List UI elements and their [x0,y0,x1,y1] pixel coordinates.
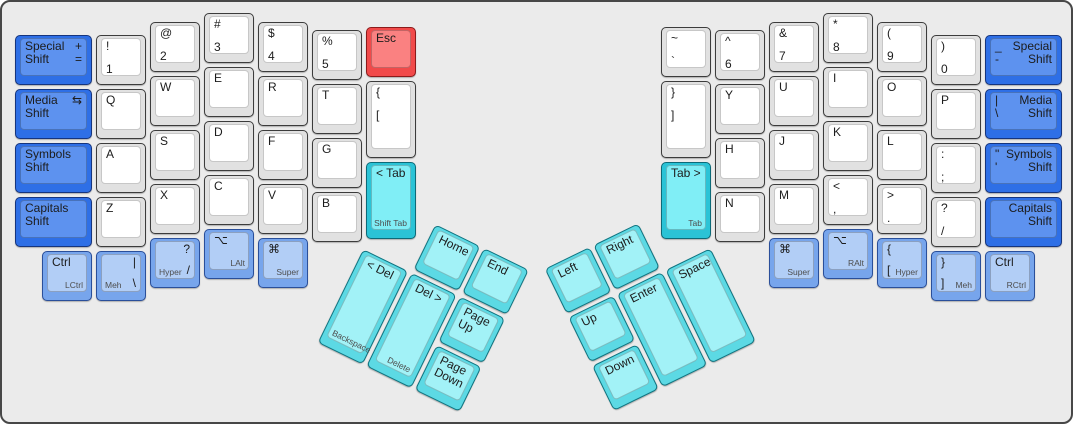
key-q[interactable]: Q [96,89,146,139]
key-brace-left[interactable]: {[ [366,81,416,158]
key-num0[interactable]: )0 [931,35,981,85]
key-g[interactable]: G [312,138,362,188]
key-lalt[interactable]: ⌥LAlt [204,229,254,279]
key-w[interactable]: W [150,76,200,126]
keycap-end: End [471,253,524,305]
key-legend-tl: Z [106,202,113,215]
key-legend-tl: : [941,148,944,161]
keycap-w: W [155,79,195,117]
keycap-meh-right: }]Meh [936,254,976,292]
keycap-brace-left: {[ [371,84,411,149]
key-c[interactable]: C [204,175,254,225]
key-legend-tl: ⌥ [833,234,847,247]
keycap-lctrl: CtrlLCtrl [47,254,87,292]
key-media-shift-left[interactable]: MediaShift⇆ [15,89,92,139]
key-legend-sr: LAlt [230,259,245,268]
key-num9[interactable]: (9 [877,22,927,72]
keycap-down: Down [598,349,651,401]
key-legend-tl: { [376,86,380,99]
keycap-q: Q [101,92,141,130]
key-s[interactable]: S [150,130,200,180]
key-legend-tl: Home [437,233,471,259]
key-num4[interactable]: $4 [258,22,308,72]
key-legend-tl: ( [887,27,891,40]
keycap-media-shift-right: |\MediaShift [990,92,1057,130]
key-legend-sr: Delete [386,356,412,375]
keycap-n: N [720,195,760,233]
key-num1[interactable]: !1 [96,35,146,85]
key-legend-tl: } [671,86,675,99]
key-legend-tl: J [779,135,785,148]
keycap-backtick: ~` [666,30,706,68]
key-legend-tl: ~ [671,32,678,45]
key-legend-tl: W [160,81,171,94]
key-lctrl[interactable]: CtrlLCtrl [42,251,92,301]
key-legend-tr: Shift [1028,53,1052,66]
key-legend-tl: M [779,189,789,202]
keycap-symbols-shift-left: SymbolsShift [20,146,87,184]
keycap-lalt: ⌥LAlt [209,232,249,270]
keycap-num1: !1 [101,38,141,76]
key-legend-sr: RAlt [848,259,864,268]
key-legend-sr: Shift Tab [374,219,407,228]
keycap-media-shift-left: MediaShift⇆ [20,92,87,130]
keycap-rctrl: CtrlRCtrl [990,254,1030,292]
keycap-up: Up [574,300,627,352]
keycap-tab-left: < TabShift Tab [371,165,411,230]
keycap-num7: &7 [774,25,814,63]
keycap-num0: )0 [936,38,976,76]
key-ralt[interactable]: ⌥RAlt [823,229,873,279]
key-legend-ml: 3 [214,41,221,54]
key-e[interactable]: E [204,67,254,117]
key-period[interactable]: >. [877,184,927,234]
key-legend-sl: Backspace [331,329,372,355]
keycap-num4: $4 [263,25,303,63]
key-legend-tr: Shift [1028,161,1052,174]
key-legend-tl: D [214,126,223,139]
key-legend-tl: Enter [628,281,659,305]
key-legend-tl: F [268,135,275,148]
key-legend-tl: U [779,81,788,94]
key-x[interactable]: X [150,184,200,234]
key-legend-tl: ⌘ [268,243,280,256]
key-legend-tr: ? [183,243,190,256]
keycap-capitals-shift-left: CapitalsShift [20,200,87,238]
keycap-s: S [155,133,195,171]
key-d[interactable]: D [204,121,254,171]
keycap-i: I [828,70,868,108]
key-legend-tl: { [887,243,891,256]
key-legend-tl: Space [677,255,713,282]
key-num5[interactable]: %5 [312,30,362,80]
keycap-slash: ?/ [936,200,976,238]
key-z[interactable]: Z [96,197,146,247]
key-legend-tl: Shift [25,161,49,174]
keycap-num8: *8 [828,16,868,54]
key-legend-tl: Q [106,94,115,107]
key-legend-tl: < [833,180,840,193]
key-super-left[interactable]: ⌘Super [258,238,308,288]
key-legend-tr: Shift [1028,107,1052,120]
key-legend-ml: 6 [725,58,732,71]
key-legend-ml: ; [941,171,944,184]
key-legend-tl: B [322,197,330,210]
keycap-num9: (9 [882,25,922,63]
key-legend-tl: Shift [25,53,49,66]
key-num3[interactable]: #3 [204,13,254,63]
key-num7[interactable]: &7 [769,22,819,72]
key-legend-ml: 1 [106,63,113,76]
keycap-t: T [317,87,357,125]
key-legend-bl: ] [941,277,944,290]
key-h[interactable]: H [715,138,765,188]
key-legend-tr: | [133,256,136,269]
keycap-num2: @2 [155,25,195,63]
key-legend-tl: < Tab [376,167,405,180]
key-legend-tl: O [887,81,896,94]
key-symbols-shift-left[interactable]: SymbolsShift [15,143,92,193]
key-legend-ml: / [941,225,944,238]
key-legend-tl: ⌥ [214,234,228,247]
key-capitals-shift-right[interactable]: CapitalsShift [985,197,1062,247]
keycap-super-right: ⌘Super [774,241,814,279]
key-legend-tl: ? [941,202,948,215]
key-special-shift-left[interactable]: SpecialShift+= [15,35,92,85]
key-legend-ml: [ [376,109,379,122]
keycap-esc: Esc [371,30,411,68]
key-legend-tl: \ [995,107,998,120]
keycap-d: D [209,124,249,162]
key-l[interactable]: L [877,130,927,180]
key-i[interactable]: I [823,67,873,117]
key-legend-sl: Meh [105,281,122,290]
key-rctrl[interactable]: CtrlRCtrl [985,251,1035,301]
key-legend-ml: 5 [322,58,329,71]
keycap-c: C [209,178,249,216]
key-legend-ml: 2 [160,50,167,63]
key-p[interactable]: P [931,89,981,139]
key-v[interactable]: V [258,184,308,234]
keycap-right: Right [599,228,652,280]
key-legend-tl: I [833,72,836,85]
key-tab-right[interactable]: Tab >Tab [661,162,711,239]
key-legend-tl: R [268,81,277,94]
key-meh-left[interactable]: |\Meh [96,251,146,301]
key-legend-ml: ` [671,55,675,68]
keycap-ralt: ⌥RAlt [828,232,868,270]
keycap-num3: #3 [209,16,249,54]
keycap-k: K [828,124,868,162]
key-legend-tl: Ctrl [995,256,1014,269]
key-backtick[interactable]: ~` [661,27,711,77]
keycap-hyper-right: {[Hyper [882,241,922,279]
keycap-e: E [209,70,249,108]
key-r[interactable]: R [258,76,308,126]
key-legend-ml: 8 [833,41,840,54]
key-legend-tl: ⌘ [779,243,791,256]
key-media-shift-right[interactable]: |\MediaShift [985,89,1062,139]
key-symbols-shift-right[interactable]: "'SymbolsShift [985,143,1062,193]
key-legend-sr: LCtrl [65,281,83,290]
keycap-page-up: PageUp [447,301,500,353]
key-semicolon[interactable]: :; [931,143,981,193]
key-special-shift-right[interactable]: _-SpecialShift [985,35,1062,85]
key-num2[interactable]: @2 [150,22,200,72]
key-legend-sr: RCtrl [1007,281,1026,290]
key-legend-tl: * [833,18,838,31]
key-legend-tl: N [725,197,734,210]
keycap-comma: <, [828,178,868,216]
key-legend-tl: Right [604,233,635,257]
keycap-symbols-shift-right: "'SymbolsShift [990,146,1057,184]
key-legend-tl: G [322,143,331,156]
key-legend-tl: % [322,35,333,48]
keycap-home: Home [422,229,475,281]
keycap-a: A [101,146,141,184]
key-legend-tl: K [833,126,841,139]
keycap-special-shift-right: _-SpecialShift [990,38,1057,76]
key-legend-tl: - [995,53,999,66]
key-legend-tl: End [485,257,510,278]
key-legend-ml: 9 [887,50,894,63]
key-legend-tl: ' [995,161,997,174]
key-legend-br: / [187,264,190,277]
key-legend-tl: @ [160,27,172,40]
keycap-v: V [263,187,303,225]
keycap-brace-right: }] [666,84,706,149]
keycap-period: >. [882,187,922,225]
keycap-f: F [263,133,303,171]
key-legend-sl: Hyper [159,268,182,277]
key-legend-tl: < Del [364,258,395,282]
keycap-b: B [317,195,357,233]
key-hyper-right[interactable]: {[Hyper [877,238,927,288]
key-legend-tl: Del > [413,282,444,306]
key-super-right[interactable]: ⌘Super [769,238,819,288]
keycap-h: H [720,141,760,179]
key-o[interactable]: O [877,76,927,126]
key-legend-tl: Shift [25,107,49,120]
key-legend-ml: 0 [941,63,948,76]
key-legend-tl: Shift [25,215,49,228]
key-brace-right[interactable]: }] [661,81,711,158]
key-b[interactable]: B [312,192,362,242]
key-legend-tl: } [941,256,945,269]
key-legend-sr: Super [276,268,299,277]
key-y[interactable]: Y [715,84,765,134]
key-legend-tl: T [322,89,329,102]
keycap-p: P [936,92,976,130]
keycap-y: Y [720,87,760,125]
key-num6[interactable]: ^6 [715,30,765,80]
keyboard-panel: SpecialShift+=MediaShift⇆SymbolsShiftCap… [0,0,1073,424]
key-legend-tl: A [106,148,114,161]
keycap-left: Left [550,252,603,304]
key-legend-tr: ⇆ [72,94,82,107]
key-legend-tl: E [214,72,222,85]
keycap-num5: %5 [317,33,357,71]
keycap-u: U [774,79,814,117]
key-m[interactable]: M [769,184,819,234]
key-legend-tl: Y [725,89,733,102]
key-tab-left[interactable]: < TabShift Tab [366,162,416,239]
keycap-capitals-shift-right: CapitalsShift [990,200,1057,238]
keycap-meh-left: |\Meh [101,254,141,292]
key-legend-tl: Left [556,260,580,280]
key-slash[interactable]: ?/ [931,197,981,247]
keycap-l: L [882,133,922,171]
key-legend-sr: Meh [955,281,972,290]
keycap-z: Z [101,200,141,238]
key-legend-sr: Tab [688,219,702,228]
key-legend-tl: Tab > [671,167,701,180]
key-legend-tl: & [779,27,787,40]
key-legend-tl: # [214,18,221,31]
keycap-hyper-left: ?/Hyper [155,241,195,279]
keycap-r: R [263,79,303,117]
key-comma[interactable]: <, [823,175,873,225]
key-legend-tl: Ctrl [52,256,71,269]
keycap-semicolon: :; [936,146,976,184]
keycap-page-down: PageDown [423,350,476,402]
key-legend-br: \ [133,277,136,290]
key-legend-tl: P [941,94,949,107]
key-legend-sr: Super [787,268,810,277]
key-f[interactable]: F [258,130,308,180]
key-legend-ml: ] [671,109,674,122]
key-k[interactable]: K [823,121,873,171]
key-hyper-left[interactable]: ?/Hyper [150,238,200,288]
key-t[interactable]: T [312,84,362,134]
key-legend-tl: > [887,189,894,202]
key-legend-sr: Hyper [895,268,918,277]
key-legend-tl: X [160,189,168,202]
key-legend-ml: , [833,203,836,216]
key-num8[interactable]: *8 [823,13,873,63]
key-legend-tr: = [75,53,82,66]
key-legend-tl: Esc [376,32,396,45]
key-legend-tl: L [887,135,894,148]
keycap-m: M [774,187,814,225]
key-meh-right[interactable]: }]Meh [931,251,981,301]
keycap-j: J [774,133,814,171]
key-legend-ml: 4 [268,50,275,63]
keycap-o: O [882,79,922,117]
keycap-special-shift-left: SpecialShift+= [20,38,87,76]
keycap-num6: ^6 [720,33,760,71]
key-legend-tl: S [160,135,168,148]
key-legend-tl: V [268,189,276,202]
key-legend-tl: $ [268,27,275,40]
key-legend-bl: [ [887,264,890,277]
key-legend-tl: C [214,180,223,193]
key-legend-tl: ) [941,40,945,53]
key-u[interactable]: U [769,76,819,126]
key-esc[interactable]: Esc [366,27,416,77]
key-legend-ml: . [887,212,890,225]
key-capitals-shift-left[interactable]: CapitalsShift [15,197,92,247]
key-j[interactable]: J [769,130,819,180]
keycap-g: G [317,141,357,179]
keycap-tab-right: Tab >Tab [666,165,706,230]
keycap-x: X [155,187,195,225]
key-n[interactable]: N [715,192,765,242]
key-a[interactable]: A [96,143,146,193]
key-legend-ml: 7 [779,50,786,63]
keycap-super-left: ⌘Super [263,241,303,279]
key-legend-tr: Shift [1028,215,1052,228]
key-legend-tl: ^ [725,35,731,48]
key-legend-tl: Down [603,353,636,378]
key-legend-tl: Up [580,311,599,329]
key-legend-tl: ! [106,40,109,53]
key-legend-tl: H [725,143,734,156]
